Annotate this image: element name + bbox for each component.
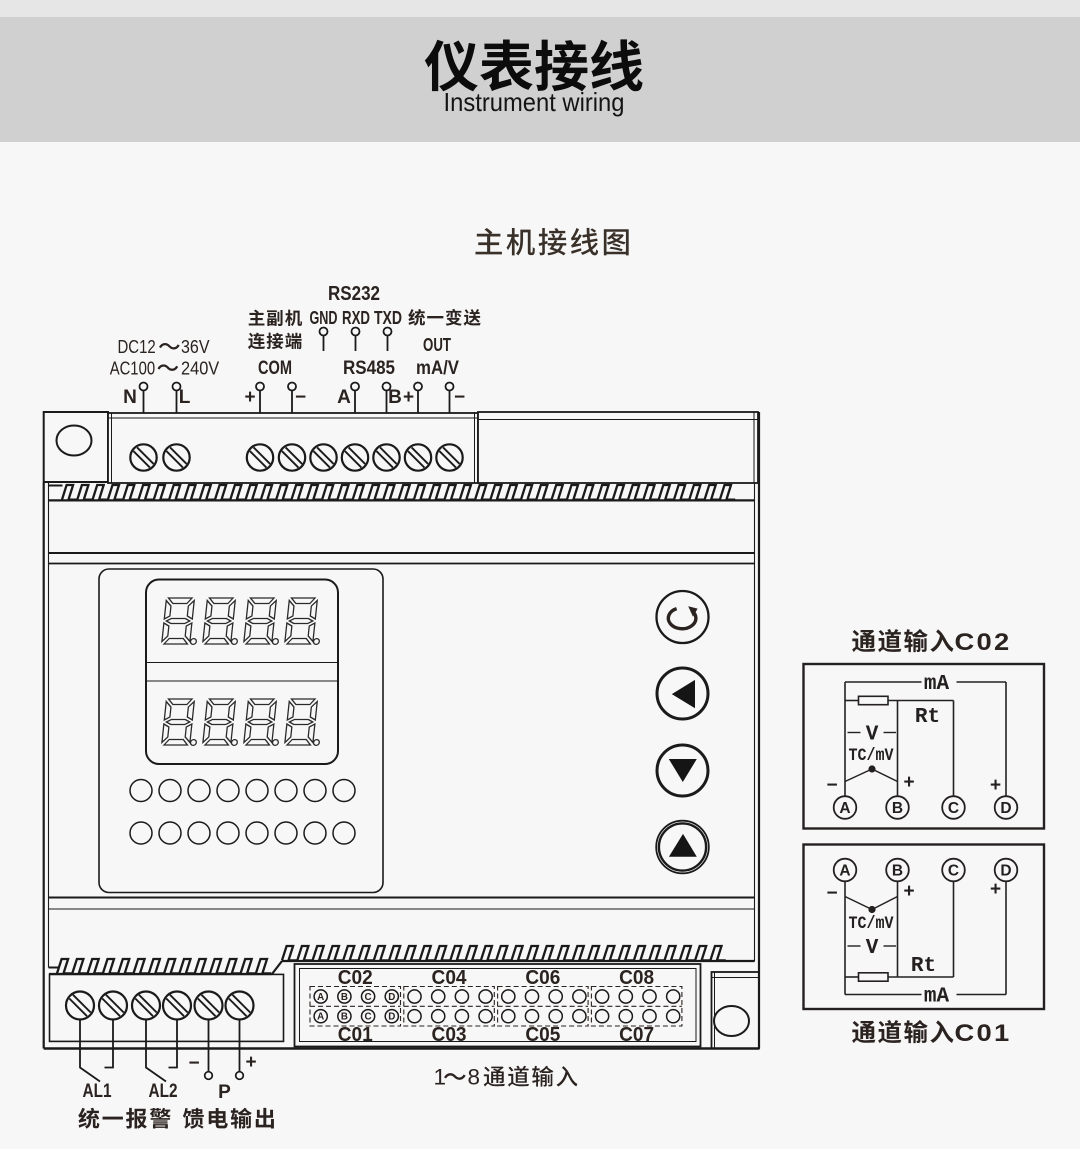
svg-text:GND: GND [310, 308, 338, 328]
svg-text:−: − [188, 1053, 199, 1074]
svg-text:RS485: RS485 [343, 358, 395, 379]
svg-text:A: A [839, 800, 850, 817]
svg-text:C: C [365, 1012, 372, 1023]
svg-text:P: P [218, 1082, 231, 1103]
svg-text:240V: 240V [181, 357, 220, 378]
svg-text:TXD: TXD [374, 308, 402, 328]
svg-text:A: A [839, 863, 850, 880]
svg-text:B: B [341, 992, 348, 1003]
svg-text:C04: C04 [432, 967, 468, 989]
svg-text:V: V [866, 937, 879, 960]
svg-text:Rt: Rt [911, 955, 936, 978]
svg-text:C06: C06 [525, 967, 560, 989]
svg-text:COM: COM [258, 358, 292, 379]
svg-text:C02: C02 [955, 629, 1012, 656]
svg-text:C: C [365, 992, 372, 1003]
svg-text:D: D [388, 1012, 395, 1023]
svg-text:OUT: OUT [423, 335, 451, 355]
svg-text:Instrument wiring: Instrument wiring [444, 87, 625, 117]
svg-text:C: C [948, 800, 959, 817]
svg-text:C: C [948, 863, 959, 880]
svg-text:L: L [179, 387, 191, 408]
svg-text:B: B [341, 1012, 348, 1023]
svg-text:RXD: RXD [342, 308, 370, 328]
svg-text:−: − [454, 387, 465, 408]
svg-text:D: D [1000, 800, 1011, 817]
svg-text:RS232: RS232 [328, 283, 380, 305]
svg-text:+: + [403, 387, 414, 408]
svg-text:DC12: DC12 [118, 336, 156, 357]
svg-text:C01: C01 [338, 1024, 373, 1046]
svg-text:B: B [388, 387, 402, 408]
svg-text:C02: C02 [338, 967, 373, 989]
svg-text:A: A [317, 1012, 324, 1023]
svg-text:C01: C01 [955, 1020, 1012, 1047]
svg-text:1: 1 [434, 1064, 447, 1089]
svg-text:AL1: AL1 [83, 1081, 112, 1102]
svg-text:+: + [990, 775, 1001, 796]
svg-text:mA/V: mA/V [416, 358, 459, 379]
svg-text:TC/mV: TC/mV [849, 914, 894, 934]
svg-text:36V: 36V [181, 336, 210, 357]
svg-text:+: + [244, 387, 255, 408]
svg-text:+: + [903, 772, 914, 793]
svg-text:TC/mV: TC/mV [849, 746, 894, 766]
svg-text:D: D [1000, 863, 1011, 880]
svg-text:A: A [317, 992, 324, 1003]
svg-text:Rt: Rt [915, 706, 940, 729]
svg-text:C05: C05 [525, 1024, 560, 1046]
svg-text:D: D [388, 992, 395, 1003]
svg-text:+: + [245, 1052, 256, 1073]
svg-text:B: B [892, 800, 903, 817]
svg-text:B: B [892, 863, 903, 880]
svg-text:+: + [903, 881, 914, 902]
svg-text:mA: mA [924, 986, 950, 1009]
svg-text:N: N [123, 387, 137, 408]
svg-text:mA: mA [924, 673, 950, 696]
svg-text:V: V [866, 724, 879, 747]
svg-text:−: − [826, 775, 837, 796]
svg-text:8: 8 [468, 1064, 481, 1089]
svg-text:A: A [337, 387, 351, 408]
svg-text:AC100: AC100 [110, 357, 155, 378]
svg-text:−: − [295, 387, 306, 408]
svg-text:+: + [990, 879, 1001, 900]
svg-text:AL2: AL2 [149, 1081, 178, 1102]
svg-text:−: − [826, 883, 837, 904]
svg-text:C07: C07 [619, 1024, 654, 1046]
svg-text:C03: C03 [432, 1024, 467, 1046]
svg-text:C08: C08 [619, 967, 654, 989]
